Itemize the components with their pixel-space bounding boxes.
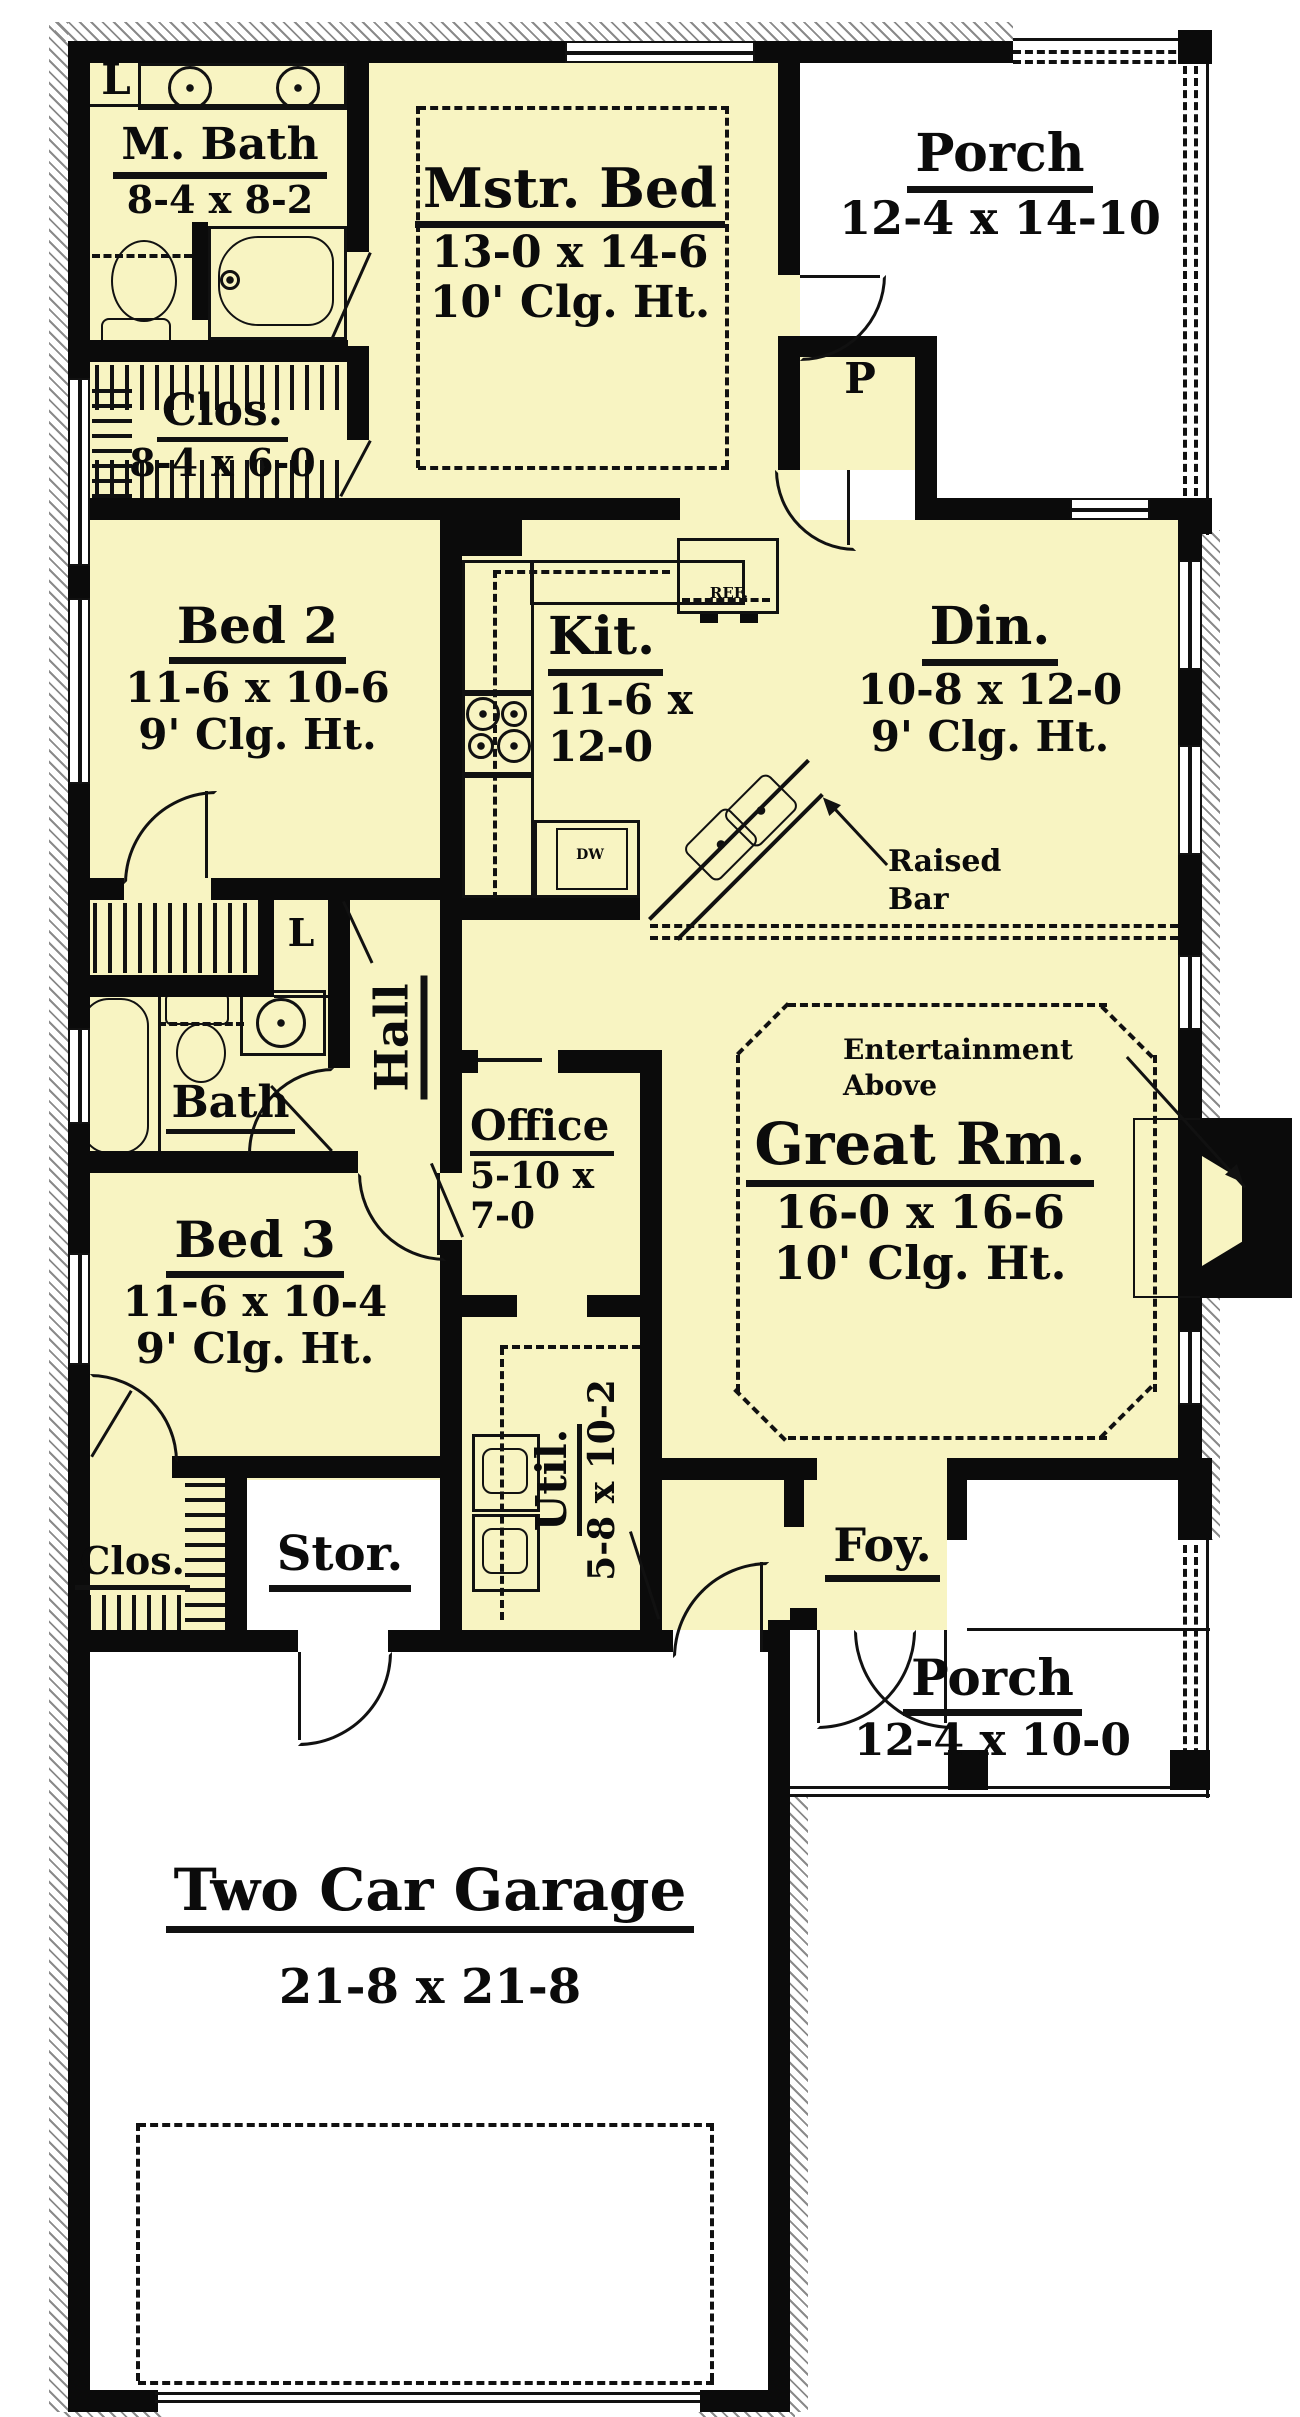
wall-greatroom-south-left	[640, 1458, 817, 1480]
wall-foyer-stub	[784, 1480, 804, 1527]
room-label-bath: Bath	[148, 1078, 313, 1134]
wall-office-util-divider-right	[587, 1295, 640, 1317]
room-label-utility: Util. 5-8 x 10-2	[525, 1335, 625, 1625]
master-bed-title: Mstr. Bed	[415, 158, 725, 228]
wall-hall-east-lower	[440, 1240, 462, 1652]
porch-bottom-top-edge	[967, 1628, 1210, 1631]
floor-plan: L M. Bath 8-4 x 8-2 Clos. 8-4 x 6-0 Mstr…	[0, 0, 1300, 2417]
siding-hatch-garage-bottom-right	[695, 2412, 795, 2417]
siding-hatch-top	[55, 22, 1013, 41]
wall-pantry-east	[915, 336, 937, 470]
linen-top-bottom-line	[90, 104, 347, 107]
fridge-symbol	[677, 538, 779, 614]
office-dims1: 5-10 x	[470, 1156, 594, 1196]
label-dishwasher: DW	[568, 848, 612, 864]
siding-hatch-garage-bottom-left	[60, 2412, 165, 2417]
kitchen-dims1: 11-6 x	[548, 676, 693, 723]
kitchen-counter-left-lower	[462, 775, 534, 898]
stove-burner-1	[466, 697, 500, 731]
wall-bath-bottom	[68, 1151, 358, 1173]
linen-top-text: L	[101, 56, 131, 103]
room-label-great-room: Great Rm. 16-0 x 16-6 10' Clg. Ht.	[700, 1112, 1140, 1290]
master-bed-ceiling: 10' Clg. Ht.	[430, 278, 710, 327]
floor-break-dash-1	[650, 924, 1178, 928]
wall-foyer-front	[790, 1608, 817, 1630]
wall-office-top-left	[462, 1050, 478, 1073]
m-bath-dims: 8-4 x 8-2	[127, 179, 313, 222]
door-leaf-storage-garage	[298, 1652, 301, 1740]
mbath-tub-wall-stub	[192, 222, 208, 320]
porch-top-title: Porch	[907, 125, 1092, 193]
wall-bed3-bottom	[172, 1456, 462, 1478]
pantry-text: P	[844, 355, 876, 402]
room-label-storage: Stor.	[250, 1528, 430, 1592]
linen-hall-bottom-line	[274, 995, 328, 998]
dining-title: Din.	[922, 598, 1059, 666]
bed3-title: Bed 3	[166, 1212, 343, 1278]
kitchen-dims2: 12-0	[548, 723, 653, 770]
mbath-toilet-bowl	[111, 240, 177, 322]
hall-title: Hall	[366, 975, 428, 1099]
room-label-porch-top: Porch 12-4 x 14-10	[805, 125, 1195, 245]
garage-slab-dash-bottom	[138, 2381, 714, 2385]
pocket-door-office	[478, 1058, 542, 1062]
porch-right-edge-top	[1206, 30, 1209, 535]
wall-se-corner-stub	[1178, 1480, 1212, 1540]
office-dims2: 7-0	[470, 1196, 535, 1236]
window-left-bath	[68, 1028, 90, 1124]
bathtub-symbol-hall	[81, 998, 149, 1154]
bed2-title: Bed 2	[169, 598, 346, 664]
foyer-title: Foy.	[825, 1520, 939, 1582]
room-label-closet-bed3: Clos.	[70, 1540, 195, 1590]
closet-master-title: Clos.	[157, 386, 288, 442]
washer-drum	[482, 1448, 528, 1494]
window-greatroom-east-2	[1178, 1330, 1202, 1405]
porch-bottom-edge-1	[790, 1786, 1210, 1789]
great-room-title: Great Rm.	[746, 1112, 1093, 1187]
utility-title: Util.	[528, 1424, 582, 1537]
dining-dims: 10-8 x 12-0	[858, 666, 1123, 713]
dryer-drum	[482, 1528, 528, 1574]
window-dining-top	[1070, 498, 1150, 520]
bath-toilet-tank	[165, 993, 229, 1025]
room-label-foyer: Foy.	[805, 1520, 960, 1582]
kitchen-title: Kit.	[548, 608, 663, 676]
porch-top-dims: 12-4 x 14-10	[839, 193, 1161, 245]
bath-title: Bath	[166, 1078, 294, 1134]
wall-closet-master-east	[347, 346, 369, 440]
door-leaf-master-porch	[800, 275, 880, 278]
stove-burner-4	[497, 729, 531, 763]
bed3-dims: 11-6 x 10-4	[123, 1278, 388, 1325]
entertainment-line2: Above	[843, 1068, 937, 1104]
octagon-ceiling-top	[788, 1003, 1107, 1007]
room-label-office: Office 5-10 x 7-0	[470, 1102, 655, 1237]
wall-garage-east	[768, 1620, 790, 2412]
mbath-tub-faucet	[220, 270, 240, 290]
siding-hatch-left	[49, 22, 68, 2412]
garage-slab-dash-top	[138, 2123, 714, 2127]
wall-garage-bottom-left	[68, 2390, 158, 2412]
porch-bottom-title: Porch	[903, 1650, 1082, 1716]
dishwasher-text: DW	[576, 848, 604, 864]
wall-garage-top-1	[68, 1630, 298, 1652]
tray-ceiling-dash-bottom	[418, 466, 729, 470]
door-leaf-bed2	[205, 791, 208, 878]
room-label-dining: Din. 10-8 x 12-0 9' Clg. Ht.	[800, 598, 1180, 760]
siding-hatch-east	[1202, 530, 1220, 1540]
bed2-dims: 11-6 x 10-6	[125, 664, 390, 711]
garage-door-line-1	[155, 2392, 700, 2395]
linen-hall-text: L	[288, 912, 315, 955]
porch-column-e-mid	[1178, 500, 1212, 534]
octagon-ceiling-bottom	[788, 1436, 1107, 1440]
room-label-porch-bottom: Porch 12-4 x 10-0	[795, 1650, 1190, 1765]
m-bath-title: M. Bath	[113, 120, 326, 179]
bed3-ceiling: 9' Clg. Ht.	[136, 1325, 374, 1372]
door-leaf-pantry	[847, 470, 850, 545]
wall-garage-top-2	[388, 1630, 673, 1652]
wall-garage-bottom-right	[700, 2390, 790, 2412]
garage-title: Two Car Garage	[166, 1858, 695, 1933]
wall-master-bottom	[369, 498, 680, 520]
utility-dims: 5-8 x 10-2	[582, 1379, 622, 1581]
porch-column-ne	[1178, 30, 1212, 64]
wall-bed2-bottom-left	[68, 878, 124, 900]
garage-slab-dash-right	[710, 2123, 714, 2381]
raised-bar-line1: Raised	[888, 843, 1001, 881]
great-room-ceiling: 10' Clg. Ht.	[773, 1238, 1066, 1290]
wall-clos-stor-divider	[225, 1478, 247, 1652]
garage-door-line-2	[155, 2400, 700, 2403]
wall-greatroom-south-right	[947, 1458, 1212, 1480]
wall-hall-east-upper	[440, 878, 462, 1160]
closet-bed3-title: Clos.	[75, 1540, 190, 1590]
garage-slab-dash-left	[136, 2123, 140, 2381]
floor-break-dash-2	[650, 936, 1178, 940]
wall-mbath-closet-divider	[68, 340, 348, 362]
wall-mbath-east-upper	[347, 41, 369, 252]
room-label-m-bath: M. Bath 8-4 x 8-2	[95, 120, 345, 222]
porch-bottom-edge-2	[790, 1794, 1210, 1797]
room-label-bed2: Bed 2 11-6 x 10-6 9' Clg. Ht.	[85, 598, 430, 758]
wall-linen-hall-east	[328, 900, 350, 1068]
annotation-raised-bar: Raised Bar	[888, 843, 1028, 918]
closet-hatch-bed2	[78, 903, 256, 973]
wall-top	[68, 41, 1013, 63]
room-label-kitchen: Kit. 11-6 x 12-0	[548, 608, 788, 770]
raised-bar-line2: Bar	[888, 881, 949, 919]
porch-bottom-dims: 12-4 x 10-0	[854, 1716, 1131, 1765]
room-label-master-bed: Mstr. Bed 13-0 x 14-6 10' Clg. Ht.	[385, 158, 755, 327]
tray-ceiling-dash-top	[418, 106, 729, 110]
window-greatroom-east-1	[1178, 955, 1202, 1030]
wall-bed2-closet-bottom	[68, 975, 258, 997]
window-left-mbath	[68, 378, 90, 566]
wall-bed2-east	[440, 520, 462, 878]
dining-ceiling: 9' Clg. Ht.	[871, 713, 1109, 760]
label-fridge: REF.	[685, 585, 773, 602]
wall-master-east	[778, 41, 800, 275]
storage-title: Stor.	[269, 1528, 411, 1592]
wall-kitchen-bottom	[462, 898, 640, 920]
annotation-entertainment: Entertainment Above	[843, 1032, 1123, 1105]
window-dining-east-2	[1178, 745, 1202, 855]
bath-toilet-bowl	[176, 1023, 226, 1083]
wall-office-util-divider-left	[462, 1295, 517, 1317]
office-title: Office	[470, 1102, 614, 1156]
stove-burner-3	[468, 733, 494, 759]
bath-sink	[256, 998, 306, 1048]
wall-bed2-bottom-right	[211, 878, 462, 900]
room-label-linen-hall: L	[272, 912, 330, 955]
fridge-text: REF.	[710, 585, 748, 602]
room-label-hall: Hall	[360, 948, 435, 1128]
room-label-garage: Two Car Garage 21-8 x 21-8	[115, 1858, 745, 2015]
wall-pantry-din-corner	[915, 470, 937, 520]
closet-master-dims: 8-4 x 6-0	[129, 442, 315, 485]
kitchen-counter-left-upper	[462, 560, 534, 693]
door-arc-storage-garage	[298, 1652, 392, 1746]
master-bed-dims: 13-0 x 14-6	[431, 228, 708, 277]
entertainment-cabinet-outline	[1133, 1118, 1203, 1298]
room-label-pantry: P	[815, 355, 905, 402]
great-room-dims: 16-0 x 16-6	[775, 1187, 1065, 1239]
bed2-ceiling: 9' Clg. Ht.	[138, 711, 376, 758]
window-dining-east-1	[1178, 560, 1202, 670]
room-label-bed3: Bed 3 11-6 x 10-4 9' Clg. Ht.	[80, 1212, 430, 1372]
siding-hatch-garage-right	[790, 1795, 808, 2412]
porch-bottom-right-dash-2	[1194, 1545, 1198, 1780]
garage-dims: 21-8 x 21-8	[279, 1961, 581, 2015]
door-leaf-garage-foyer	[760, 1562, 763, 1652]
stove-burner-2	[501, 701, 527, 727]
entertainment-line1: Entertainment	[843, 1032, 1073, 1068]
room-label-closet-master: Clos. 8-4 x 6-0	[100, 386, 345, 485]
window-master-top	[565, 41, 755, 63]
room-label-linen-top: L	[92, 56, 140, 103]
